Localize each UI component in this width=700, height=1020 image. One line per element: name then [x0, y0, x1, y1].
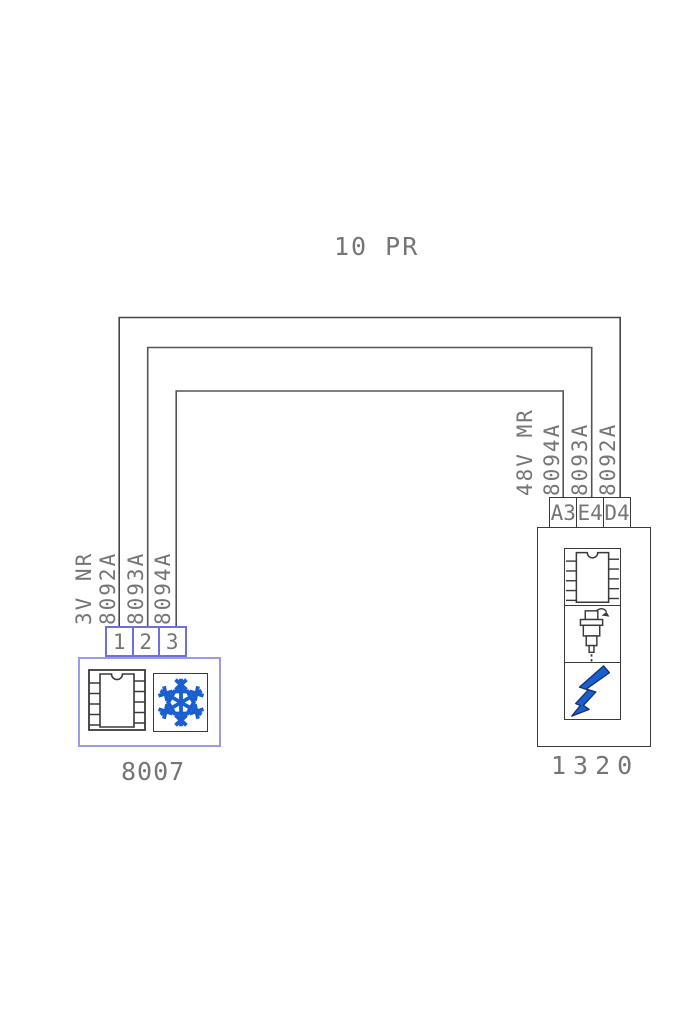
left-wire-label-8093a: 8093A — [125, 552, 147, 625]
pin-a3: A3 — [549, 497, 578, 528]
left-harness-label: 3V NR — [73, 552, 95, 625]
right-wire-label-8092a: 8092A — [597, 423, 619, 496]
ic-chip-icon — [88, 669, 146, 731]
pin-d4: D4 — [603, 497, 632, 528]
snowflake-icon — [156, 676, 206, 729]
pin-e4: E4 — [576, 497, 605, 528]
lightning-bolt-icon — [565, 662, 620, 720]
wire-8094a — [176, 391, 563, 626]
snowflake-cell — [153, 673, 208, 732]
component-1320-box — [537, 527, 651, 747]
ic-chip-cell — [564, 548, 621, 607]
ic-chip-icon — [565, 548, 620, 606]
left-wire-label-8094a: 8094A — [152, 552, 174, 625]
pin-3: 3 — [158, 626, 187, 657]
right-wire-label-8093a: 8093A — [569, 423, 591, 496]
pin-2: 2 — [132, 626, 161, 657]
right-pin-row: A3 E4 D4 — [549, 497, 631, 528]
fuel-injector-cell — [564, 605, 621, 664]
right-wire-label-8094a: 8094A — [541, 423, 563, 496]
pin-1: 1 — [105, 626, 134, 657]
icon-column — [564, 548, 621, 720]
lightning-bolt-cell — [564, 662, 621, 721]
wiring-diagram: 10 PR 3V NR 8092A 8093A 8094A 1 2 3 — [0, 0, 700, 1020]
right-harness-label: 48V MR — [514, 408, 536, 496]
left-wire-label-8092a: 8092A — [97, 552, 119, 625]
component-code-8007: 8007 — [121, 757, 185, 786]
left-pin-row: 1 2 3 — [105, 626, 187, 657]
component-code-1320: 1320 — [551, 751, 639, 780]
component-8007-box — [78, 657, 221, 747]
fuel-injector-icon — [565, 605, 620, 663]
